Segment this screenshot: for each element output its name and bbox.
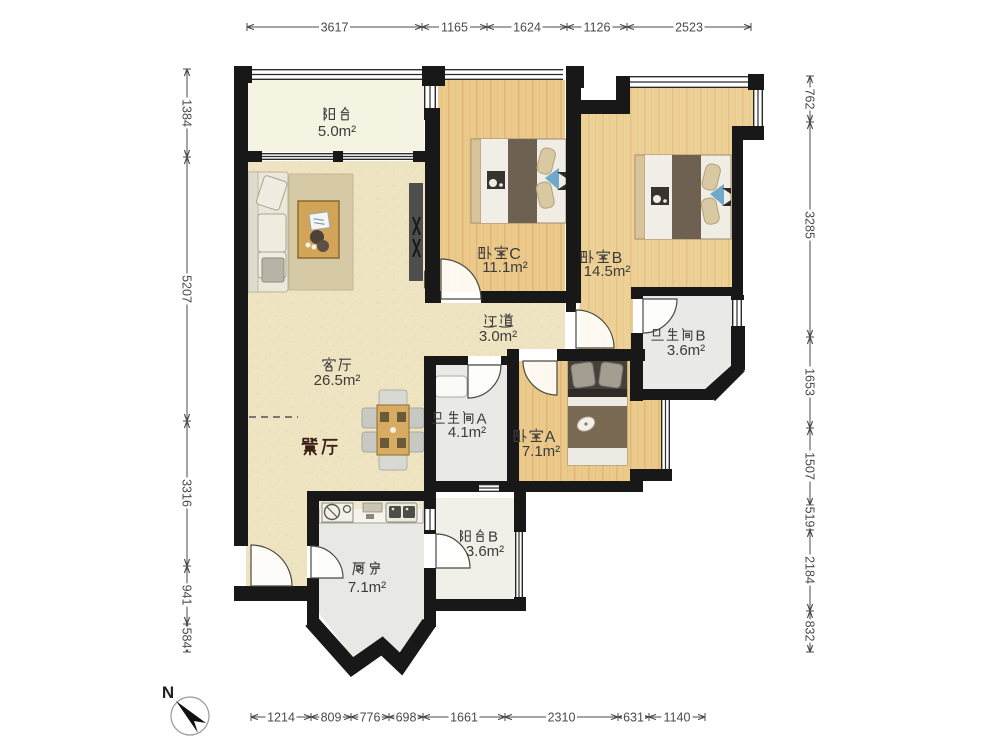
svg-text:11.1m²: 11.1m² — [482, 259, 528, 276]
svg-text:3.0m²: 3.0m² — [479, 328, 517, 345]
svg-text:631: 631 — [623, 711, 644, 725]
svg-text:1661: 1661 — [450, 711, 478, 725]
svg-text:584: 584 — [180, 628, 194, 649]
svg-text:3285: 3285 — [803, 211, 817, 239]
svg-text:762: 762 — [803, 89, 817, 110]
svg-text:1126: 1126 — [584, 21, 611, 35]
svg-text:2184: 2184 — [803, 556, 817, 584]
svg-text:1384: 1384 — [180, 99, 194, 127]
svg-text:3.6m²: 3.6m² — [667, 342, 705, 359]
svg-text:1507: 1507 — [803, 452, 817, 480]
svg-text:1653: 1653 — [803, 368, 817, 396]
svg-text:4.1m²: 4.1m² — [448, 424, 486, 441]
svg-text:7.1m²: 7.1m² — [522, 443, 560, 460]
svg-text:3.6m²: 3.6m² — [466, 543, 504, 560]
svg-text:26.5m²: 26.5m² — [314, 372, 361, 389]
svg-text:832: 832 — [803, 621, 817, 642]
svg-text:2523: 2523 — [675, 21, 703, 35]
svg-text:698: 698 — [396, 711, 417, 725]
svg-text:519: 519 — [803, 507, 817, 528]
svg-text:809: 809 — [321, 711, 342, 725]
svg-text:2310: 2310 — [548, 711, 576, 725]
svg-text:7.1m²: 7.1m² — [348, 579, 386, 596]
svg-text:1165: 1165 — [441, 21, 468, 35]
svg-text:941: 941 — [180, 585, 194, 606]
svg-text:776: 776 — [360, 711, 381, 725]
svg-text:5.0m²: 5.0m² — [318, 123, 356, 140]
svg-text:N: N — [162, 683, 174, 702]
svg-text:3617: 3617 — [321, 21, 349, 35]
svg-text:14.5m²: 14.5m² — [584, 263, 631, 280]
svg-text:1624: 1624 — [513, 21, 541, 35]
svg-text:1140: 1140 — [664, 711, 691, 725]
svg-text:3316: 3316 — [180, 479, 194, 507]
svg-text:5207: 5207 — [180, 275, 194, 303]
svg-text:1214: 1214 — [267, 711, 295, 725]
